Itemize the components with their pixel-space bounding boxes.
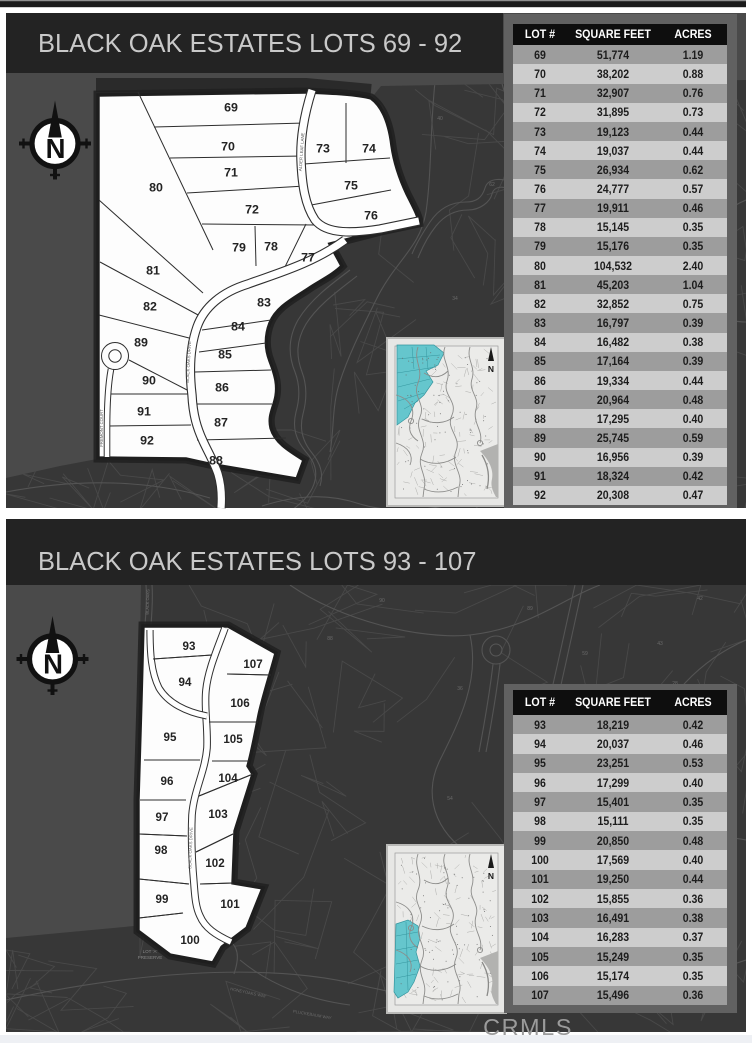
svg-text:99: 99: [156, 893, 169, 906]
svg-text:90: 90: [142, 374, 156, 388]
svg-text:90: 90: [379, 598, 385, 604]
svg-text:59: 59: [582, 651, 588, 657]
svg-text:87: 87: [214, 416, 228, 430]
svg-text:80: 80: [149, 181, 163, 195]
svg-text:N: N: [46, 133, 66, 164]
svg-text:79: 79: [232, 241, 246, 255]
svg-text:34: 34: [452, 296, 458, 302]
svg-text:N: N: [488, 364, 494, 374]
svg-text:96: 96: [161, 775, 174, 788]
svg-text:LOT 'A': LOT 'A': [143, 949, 158, 954]
svg-text:100: 100: [180, 934, 199, 947]
svg-text:82: 82: [143, 300, 157, 314]
svg-text:PRESERVE: PRESERVE: [138, 955, 162, 960]
svg-text:43: 43: [657, 641, 663, 647]
svg-text:69: 69: [224, 101, 238, 115]
svg-text:78: 78: [264, 240, 278, 254]
svg-text:84: 84: [231, 320, 245, 334]
svg-text:88: 88: [327, 636, 333, 642]
svg-text:42: 42: [697, 596, 703, 602]
svg-text:FREMONT COURT: FREMONT COURT: [99, 409, 104, 447]
svg-text:40: 40: [437, 116, 443, 122]
svg-text:81: 81: [146, 264, 160, 278]
svg-text:94: 94: [179, 676, 192, 689]
svg-text:62: 62: [489, 182, 495, 188]
svg-text:101: 101: [220, 898, 240, 911]
svg-text:91: 91: [137, 405, 151, 419]
svg-text:89: 89: [527, 606, 533, 612]
svg-text:85: 85: [218, 348, 232, 362]
svg-text:N: N: [43, 649, 63, 680]
svg-text:92: 92: [140, 434, 154, 448]
svg-text:103: 103: [208, 808, 228, 821]
svg-text:104: 104: [218, 772, 238, 785]
svg-text:BLACK OAKS: BLACK OAKS: [145, 589, 151, 615]
svg-text:88: 88: [209, 454, 223, 468]
svg-text:77: 77: [301, 251, 315, 265]
svg-text:105: 105: [223, 733, 243, 746]
svg-text:54: 54: [447, 796, 453, 802]
svg-text:70: 70: [221, 140, 235, 154]
svg-text:95: 95: [164, 731, 177, 744]
svg-text:36: 36: [457, 686, 463, 692]
svg-text:98: 98: [155, 844, 168, 857]
svg-text:N: N: [488, 871, 494, 881]
svg-text:83: 83: [257, 296, 271, 310]
svg-text:106: 106: [230, 697, 250, 710]
svg-text:75: 75: [344, 179, 358, 193]
svg-text:107: 107: [243, 658, 262, 671]
svg-text:73: 73: [316, 142, 330, 156]
svg-text:74: 74: [362, 142, 376, 156]
svg-text:89: 89: [134, 336, 148, 350]
svg-text:72: 72: [245, 203, 259, 217]
svg-text:97: 97: [156, 811, 169, 824]
svg-text:93: 93: [183, 640, 196, 653]
svg-text:102: 102: [205, 857, 224, 870]
svg-text:86: 86: [215, 381, 229, 395]
svg-text:76: 76: [364, 209, 378, 223]
svg-text:71: 71: [224, 166, 238, 180]
